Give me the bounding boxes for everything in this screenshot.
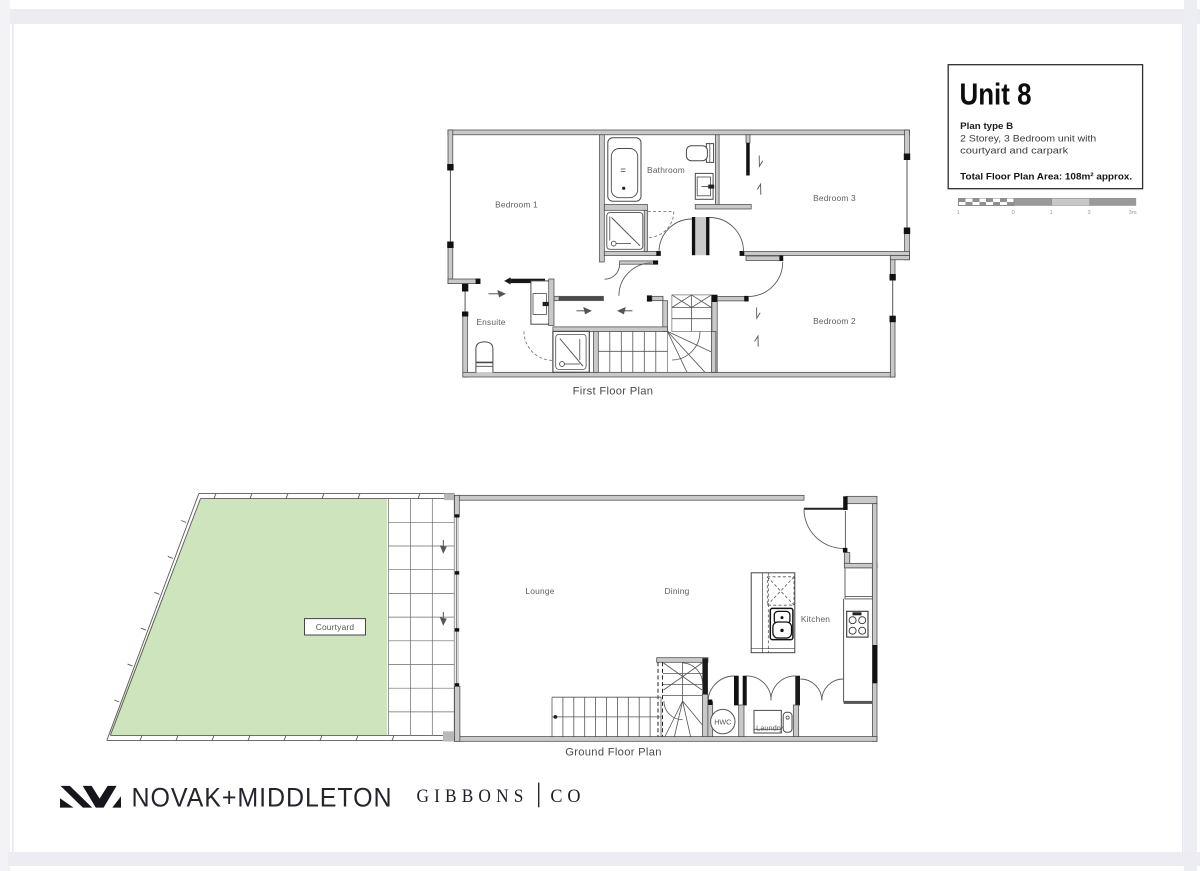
- svg-text:Lounge: Lounge: [525, 586, 554, 596]
- svg-text:GIBBONS: GIBBONS: [417, 787, 529, 807]
- svg-text:Ensuite: Ensuite: [476, 317, 505, 327]
- svg-text:1: 1: [957, 210, 960, 216]
- svg-text:3m: 3m: [1129, 210, 1137, 216]
- svg-text:2: 2: [1088, 210, 1091, 216]
- svg-text:0: 0: [1012, 210, 1015, 216]
- svg-text:courtyard and carpark: courtyard and carpark: [960, 145, 1068, 156]
- svg-text:Dining: Dining: [665, 586, 690, 596]
- svg-text:Plan type B: Plan type B: [960, 121, 1014, 131]
- svg-text:Courtyard: Courtyard: [316, 622, 355, 632]
- svg-text:2 Storey, 3 Bedroom unit with: 2 Storey, 3 Bedroom unit with: [960, 133, 1096, 144]
- svg-text:Total Floor Plan Area: 108m² a: Total Floor Plan Area: 108m² approx.: [960, 172, 1132, 182]
- svg-text:Bedroom 2: Bedroom 2: [813, 316, 856, 326]
- svg-text:NOVAK+MIDDLETON: NOVAK+MIDDLETON: [132, 783, 393, 813]
- svg-text:Bedroom 1: Bedroom 1: [495, 200, 538, 210]
- svg-text:1: 1: [1050, 210, 1053, 216]
- svg-text:HWC: HWC: [714, 717, 731, 726]
- svg-text:Kitchen: Kitchen: [801, 614, 830, 624]
- svg-text:First Floor Plan: First Floor Plan: [573, 386, 654, 398]
- svg-text:Laundry: Laundry: [756, 723, 783, 732]
- svg-text:Unit 8: Unit 8: [960, 78, 1032, 112]
- svg-text:Bedroom 3: Bedroom 3: [813, 193, 856, 203]
- svg-text:CO: CO: [550, 787, 585, 807]
- svg-text:Ground Floor Plan: Ground Floor Plan: [565, 747, 662, 759]
- svg-text:Bathroom: Bathroom: [647, 165, 685, 175]
